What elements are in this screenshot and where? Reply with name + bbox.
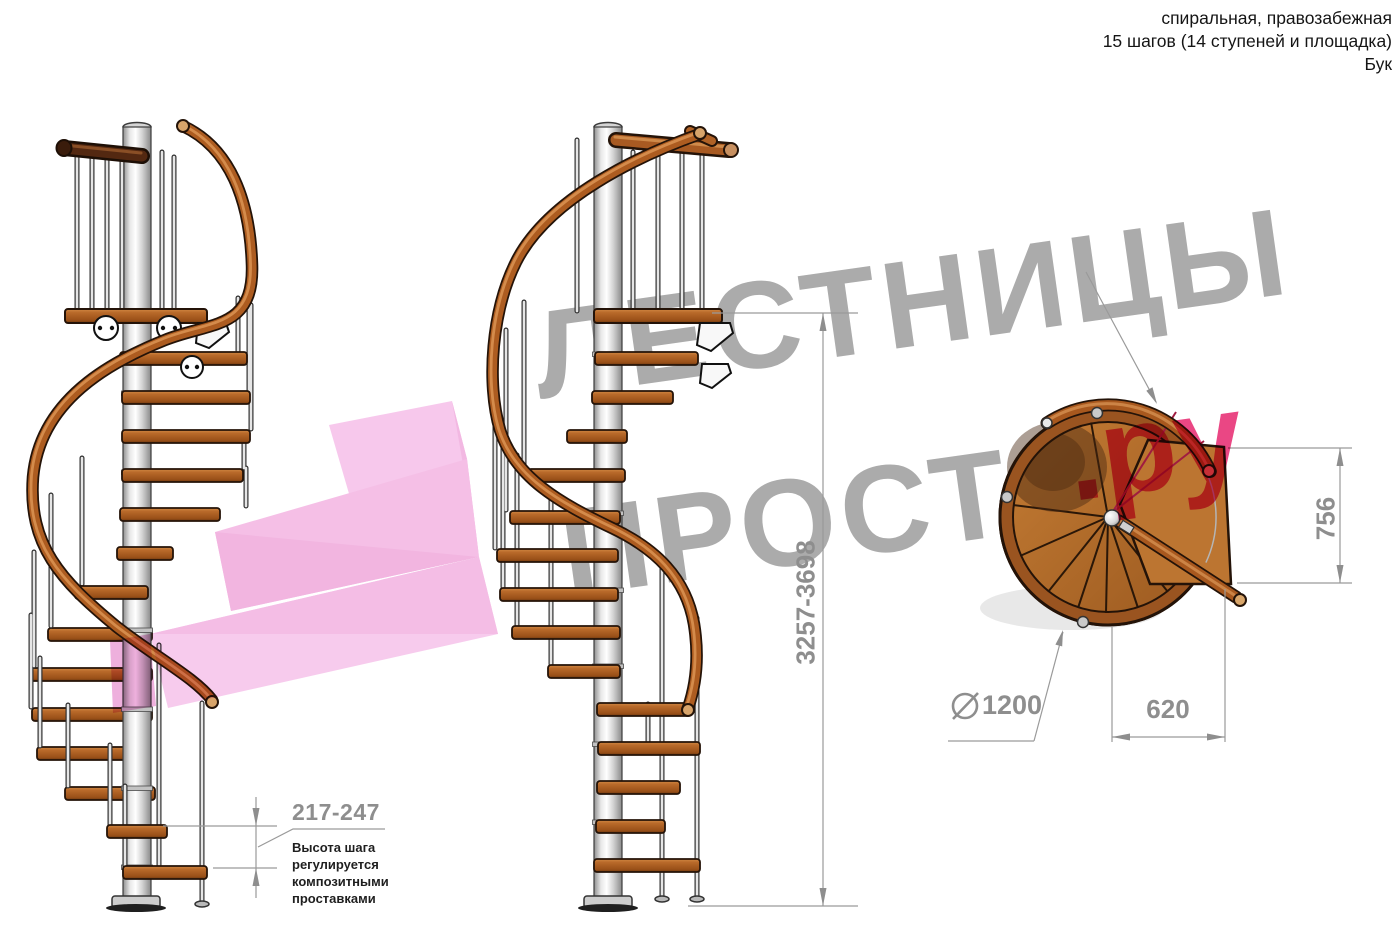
stair-material-label: Бук — [1103, 53, 1392, 76]
watermark-suffix: .ру — [1058, 373, 1251, 521]
title-block: спиральная, правозабежная 15 шагов (14 с… — [1103, 7, 1392, 76]
stair-steps-label: 15 шагов (14 ступеней и площадка) — [1103, 30, 1392, 53]
drawing-canvas: ЛЕСТНИЦЫ ПРОСТО — [0, 0, 1400, 951]
stair-type-label: спиральная, правозабежная — [1103, 7, 1392, 30]
